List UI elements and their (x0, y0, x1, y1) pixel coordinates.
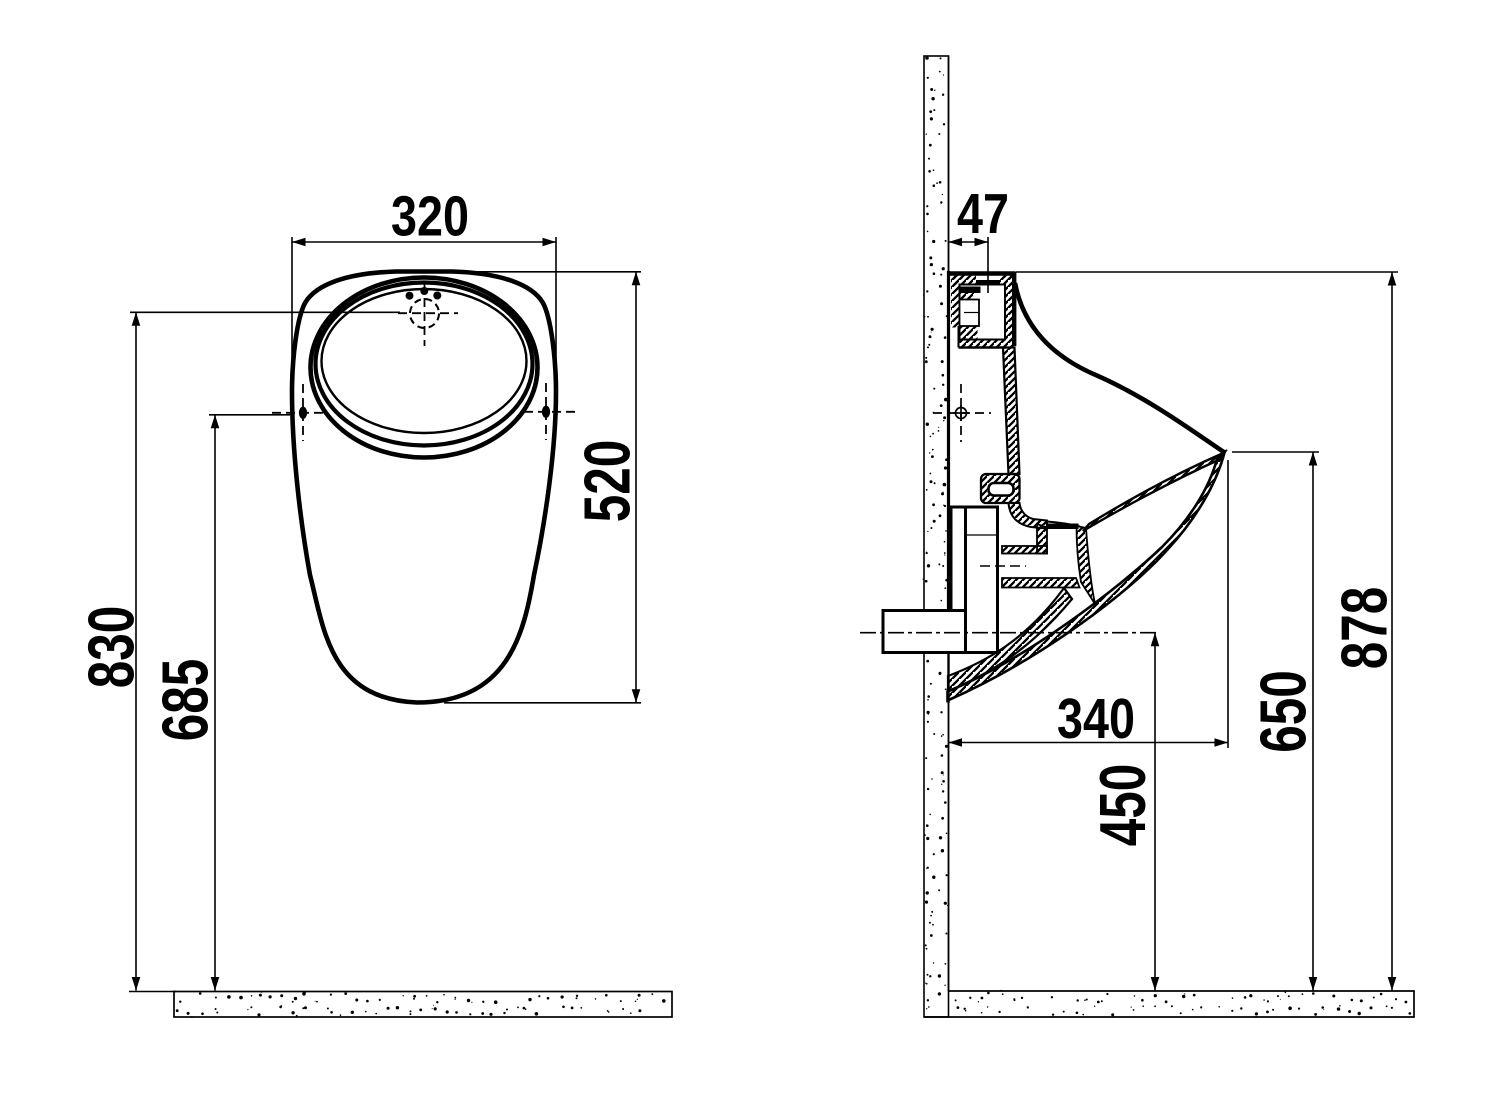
svg-text:320: 320 (391, 185, 469, 248)
svg-text:520: 520 (572, 440, 644, 522)
svg-text:830: 830 (76, 606, 148, 688)
svg-text:878: 878 (1329, 587, 1401, 669)
svg-text:650: 650 (1248, 670, 1320, 752)
svg-text:47: 47 (957, 183, 1009, 246)
svg-text:685: 685 (150, 659, 222, 741)
svg-text:340: 340 (1057, 688, 1135, 751)
svg-text:450: 450 (1087, 764, 1159, 846)
